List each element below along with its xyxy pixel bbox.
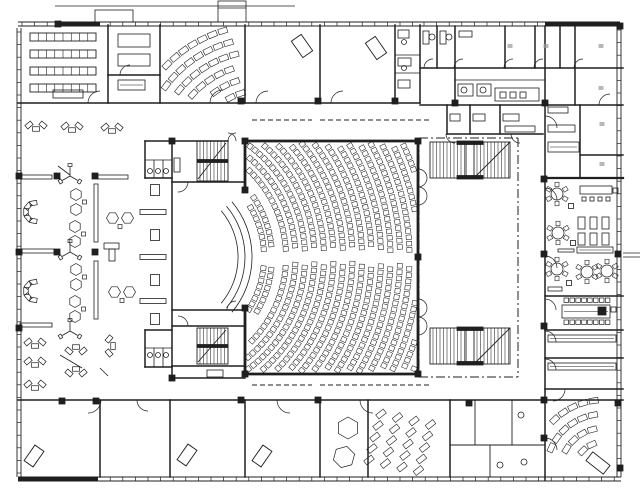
classroom-table-rows — [30, 33, 96, 92]
grid-seating-room — [364, 409, 436, 475]
floor-plan-page — [0, 0, 640, 499]
balcony-dashed-outline — [252, 120, 430, 385]
upper-hall-dashdot-outline — [419, 138, 518, 377]
stage-platform-arcs — [221, 202, 252, 313]
furniture-rects — [53, 1, 618, 377]
floor-plan-drawing — [0, 0, 640, 499]
fan-seating-rooms — [161, 27, 598, 456]
auditorium-seating — [245, 141, 418, 374]
